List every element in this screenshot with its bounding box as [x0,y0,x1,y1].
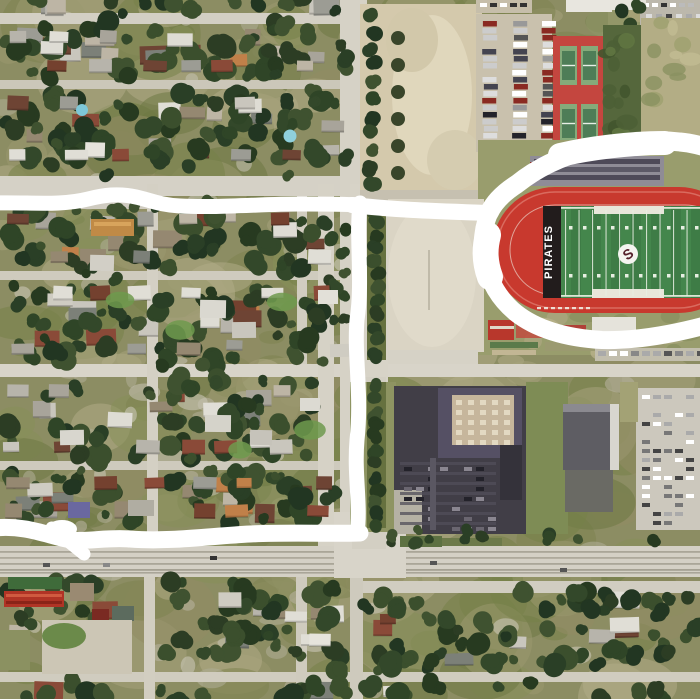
svg-text:PIRATES: PIRATES [543,225,555,279]
